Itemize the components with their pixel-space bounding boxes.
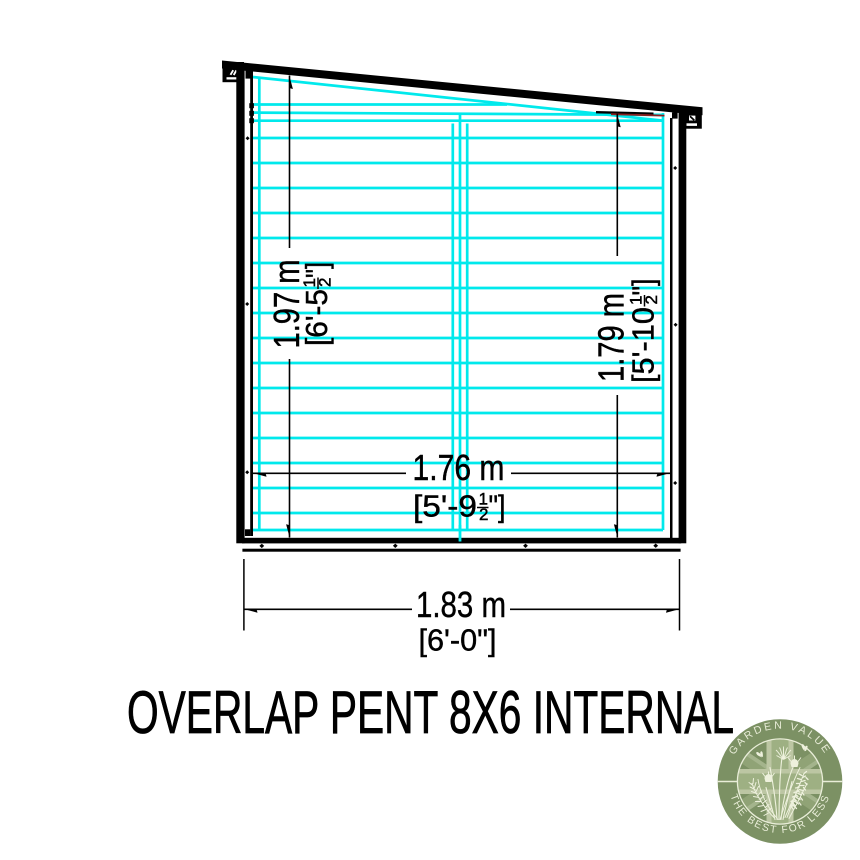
svg-text:[6'-0"]: [6'-0"] xyxy=(419,623,497,658)
svg-text:1.76 m: 1.76 m xyxy=(413,447,505,488)
svg-text:"]: "] xyxy=(489,489,506,524)
svg-text:"]: "] xyxy=(626,279,661,296)
svg-text:[5'-9: [5'-9 xyxy=(413,489,477,524)
svg-text:1.83 m: 1.83 m xyxy=(416,584,506,625)
svg-text:[6'-5: [6'-5 xyxy=(299,289,334,346)
svg-text:OVERLAP PENT 8X6 INTERNAL: OVERLAP PENT 8X6 INTERNAL xyxy=(127,679,734,746)
svg-text:"]: "] xyxy=(299,262,334,278)
svg-text:[5'-10: [5'-10 xyxy=(626,307,661,383)
